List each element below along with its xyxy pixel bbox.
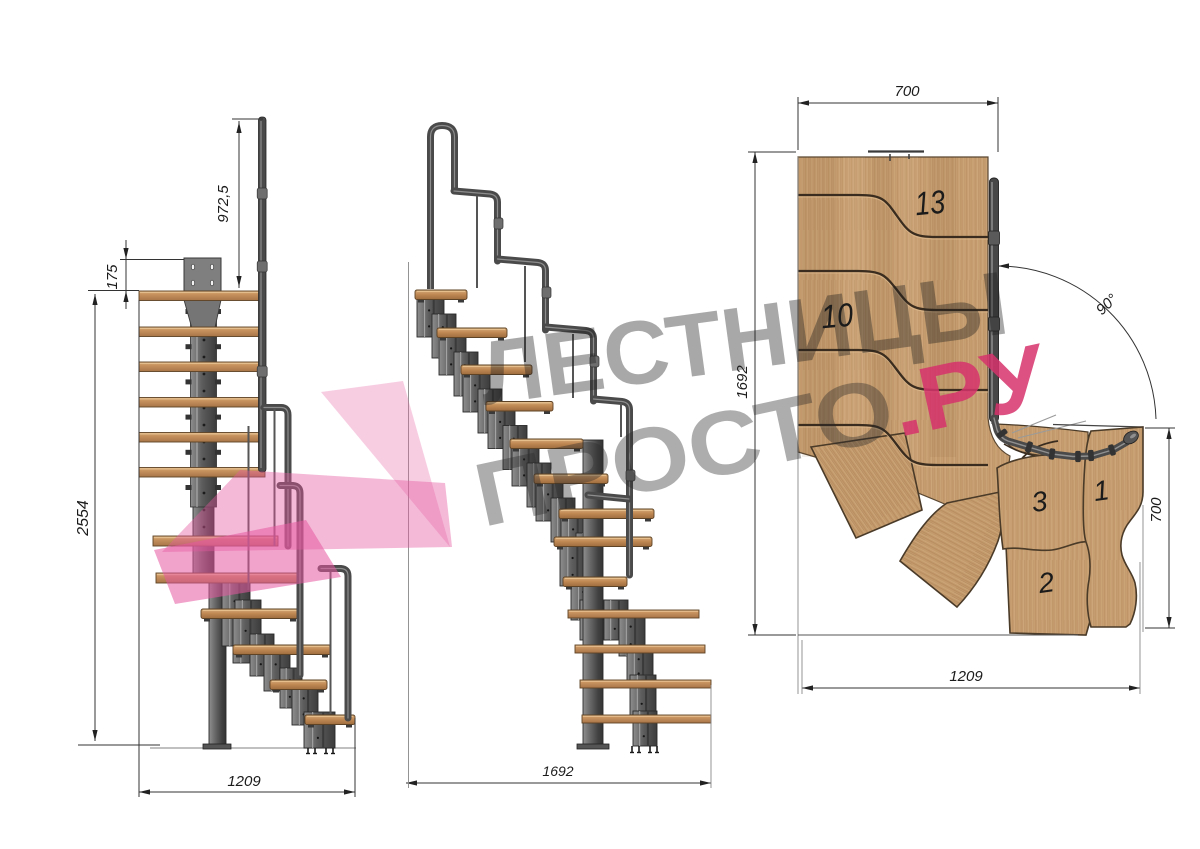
svg-text:2554: 2554 bbox=[75, 500, 92, 537]
svg-text:700: 700 bbox=[894, 83, 920, 100]
svg-text:90°: 90° bbox=[1093, 291, 1121, 319]
svg-text:175: 175 bbox=[104, 264, 121, 290]
svg-text:1209: 1209 bbox=[227, 773, 261, 790]
svg-text:1692: 1692 bbox=[542, 763, 573, 779]
svg-text:972,5: 972,5 bbox=[215, 185, 232, 223]
svg-text:1209: 1209 bbox=[949, 668, 983, 685]
svg-text:13: 13 bbox=[913, 183, 947, 223]
svg-text:700: 700 bbox=[1148, 497, 1165, 523]
